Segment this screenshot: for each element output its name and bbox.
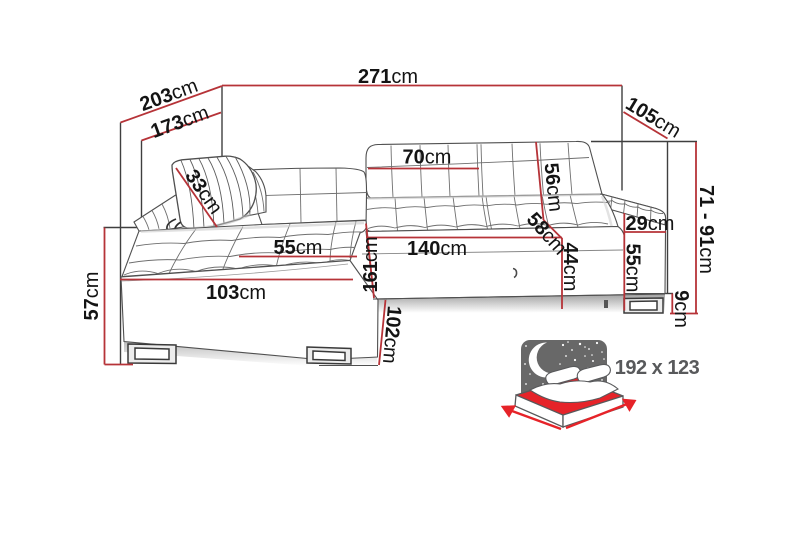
svg-text:271cm: 271cm	[358, 66, 418, 88]
svg-text:161cm: 161cm	[360, 237, 382, 292]
svg-text:71 - 91cm: 71 - 91cm	[695, 185, 717, 274]
svg-text:9cm: 9cm	[670, 290, 692, 328]
svg-text:57cm: 57cm	[81, 272, 103, 321]
svg-text:55cm: 55cm	[622, 244, 644, 293]
svg-text:192 x 123: 192 x 123	[615, 357, 700, 379]
svg-text:44cm: 44cm	[559, 243, 581, 292]
svg-text:103cm: 103cm	[206, 282, 266, 304]
svg-text:29cm: 29cm	[626, 213, 675, 235]
svg-text:55cm: 55cm	[274, 237, 323, 259]
svg-text:140cm: 140cm	[407, 238, 467, 260]
svg-text:70cm: 70cm	[403, 147, 452, 169]
